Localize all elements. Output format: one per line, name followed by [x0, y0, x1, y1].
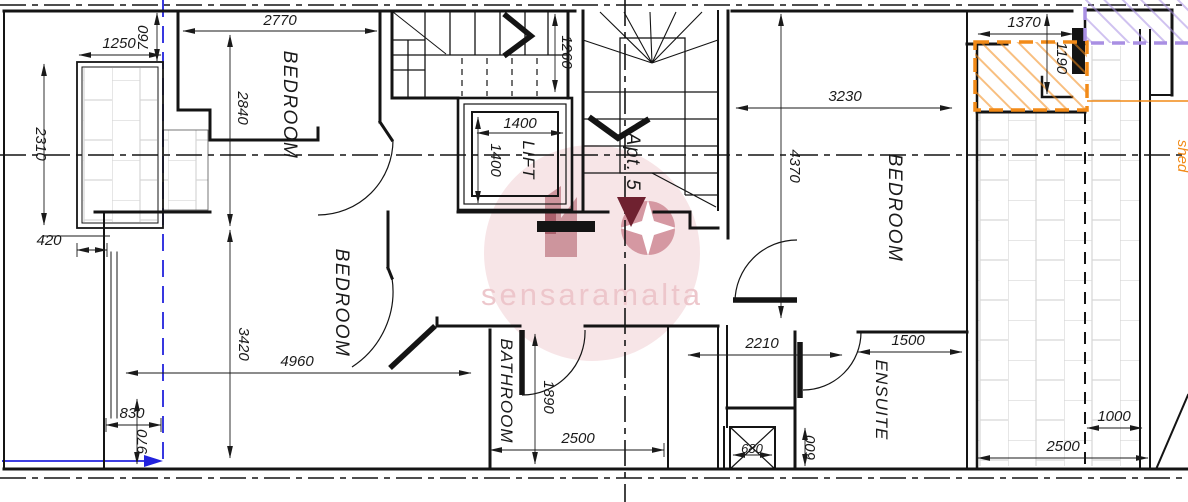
room-bedroom-top-left: BEDROOM	[279, 51, 300, 160]
blue-arrow-head	[144, 455, 163, 467]
dim-3420: 3420	[235, 327, 252, 361]
dim-1250: 1250	[102, 35, 136, 52]
balcony-tiles	[83, 68, 157, 222]
dim-600: 600	[802, 435, 819, 461]
shed-label: shed	[1174, 140, 1188, 173]
door-arc-bedroom-top-left	[318, 140, 393, 215]
dim-1000: 1000	[1097, 408, 1131, 425]
room-ensuite: ENSUITE	[872, 360, 891, 441]
dim-420: 420	[36, 232, 62, 249]
dim-2210: 2210	[744, 335, 779, 352]
dim-2310: 2310	[32, 126, 49, 161]
dim-1500: 1500	[891, 332, 925, 349]
door-leaf-bedroom-bottom-left	[390, 326, 435, 368]
room-lift: LIFT	[519, 141, 538, 181]
dim-2770: 2770	[262, 12, 297, 29]
floor-plan-svg: sensaramalta	[0, 0, 1188, 502]
dim-1890: 1890	[540, 380, 557, 414]
dim-1370: 1370	[1007, 14, 1041, 31]
dim-2500-terrace: 2500	[1045, 438, 1080, 455]
room-bedroom-right: BEDROOM	[884, 154, 905, 263]
dim-2500-bathroom: 2500	[560, 430, 595, 447]
dim-1190: 1190	[1053, 42, 1070, 75]
stair-left	[392, 11, 568, 98]
room-bathroom: BATHROOM	[497, 339, 516, 444]
threshold-wall	[537, 221, 595, 232]
dim-3230: 3230	[828, 88, 862, 105]
watermark-text: sensaramalta	[481, 277, 703, 312]
purple-hatch-zone	[1085, 0, 1188, 43]
dim-680: 680	[741, 441, 763, 456]
room-bedroom-bottom-left: BEDROOM	[331, 249, 352, 358]
dim-4960: 4960	[280, 353, 314, 370]
apartment-label: Apt. 5	[622, 132, 643, 192]
dim-1260: 1260	[558, 35, 575, 69]
dim-4370: 4370	[786, 149, 803, 183]
planter-tiles	[163, 130, 208, 210]
dim-1400-w: 1400	[503, 115, 537, 132]
stair-break-mark	[504, 14, 531, 56]
dim-830: 830	[119, 405, 145, 422]
watermark-logo: sensaramalta	[481, 145, 703, 361]
door-arc-ensuite	[803, 332, 861, 390]
dim-760: 760	[135, 25, 152, 51]
door-arc-bedroom-bottom-left	[352, 278, 393, 367]
dim-2840: 2840	[234, 90, 251, 125]
dim-1400-h: 1400	[487, 143, 504, 177]
dim-970: 970	[134, 429, 151, 455]
door-arc-bedroom-right	[735, 240, 797, 302]
floor-plan-canvas: sensaramalta	[0, 0, 1188, 502]
